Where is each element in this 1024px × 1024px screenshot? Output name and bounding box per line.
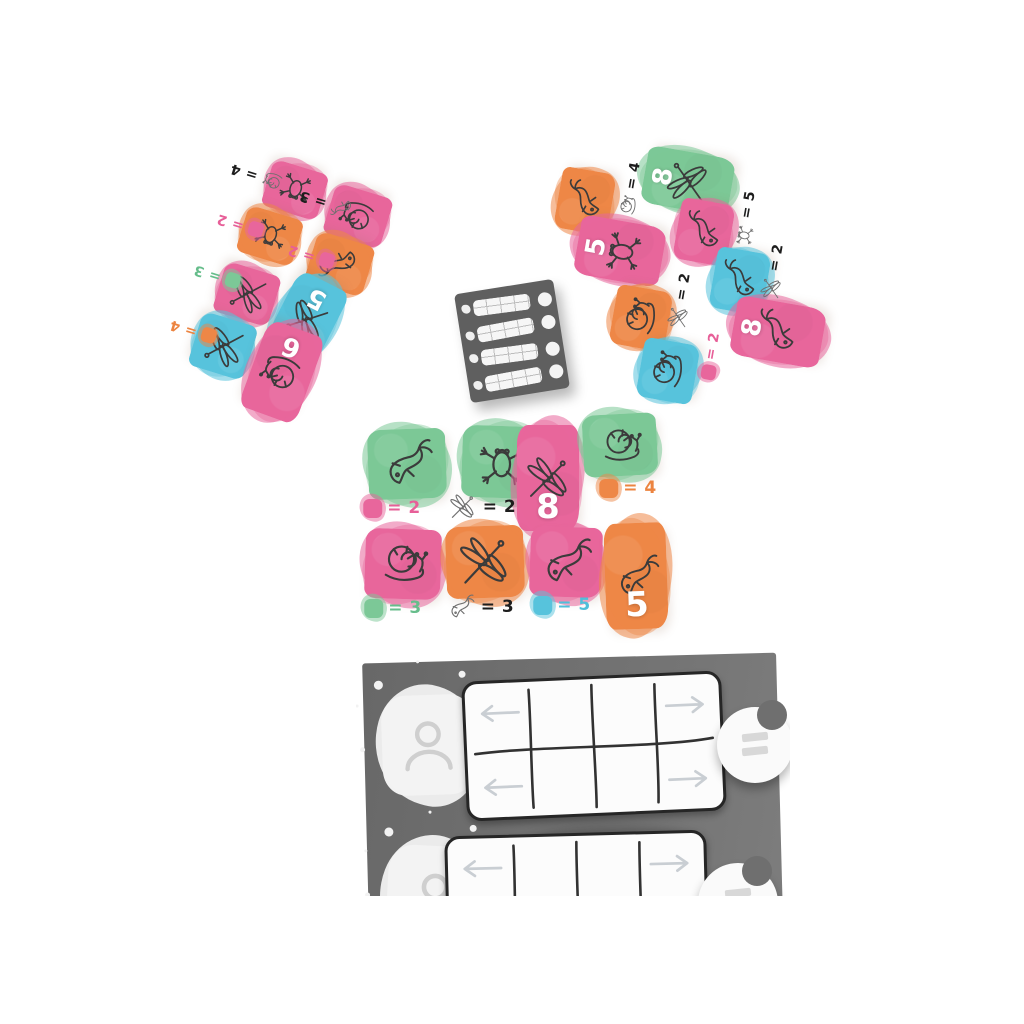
conversion-annotation: = 4 [599, 478, 657, 498]
tracking-grid [461, 670, 727, 821]
conversion-label: = 2 [766, 243, 787, 273]
conversion-label: = 2 [702, 331, 723, 361]
person-icon [396, 710, 461, 780]
card-pink-fish-8: 8 [728, 295, 827, 370]
orange-swatch-icon [199, 326, 218, 345]
teal-swatch-icon [533, 596, 552, 615]
conversion-annotation: = 4 [614, 160, 648, 220]
orange-swatch-icon [599, 479, 618, 498]
mini-flower-slot [465, 331, 475, 341]
score-pad [454, 279, 570, 403]
fish-icon [374, 434, 440, 494]
dragonfly-icon [448, 492, 478, 522]
arrow-right-icon [666, 768, 711, 790]
mini-flower-slot [473, 380, 483, 390]
conversion-annotation: = 3 [364, 598, 422, 618]
conversion-annotation: = 2 [699, 331, 723, 381]
mini-flower-slot [461, 304, 471, 314]
dragonfly-icon [664, 303, 692, 331]
fish-icon [446, 592, 476, 622]
mini-tracking-grid [480, 343, 539, 366]
arrow-left-icon [477, 702, 522, 724]
conversion-label: = 3 [192, 261, 223, 284]
mini-equals-token [545, 341, 561, 357]
green-swatch-icon [223, 271, 242, 290]
dragonfly-icon [452, 531, 518, 592]
card-green-fish [367, 428, 447, 501]
mini-equals-token [540, 314, 556, 330]
snail-icon [588, 418, 651, 472]
conversion-label: = 3 [481, 597, 515, 617]
conversion-annotation: = 5 [533, 595, 591, 615]
card-pink-frog-5: 5 [572, 214, 667, 288]
snail-icon [371, 534, 435, 594]
mini-flower-slot [469, 354, 479, 364]
conversion-label: = 3 [388, 598, 422, 618]
card-teal-snail [635, 337, 701, 406]
pink-swatch-icon [317, 251, 336, 270]
conversion-label: = 2 [483, 497, 517, 517]
tracking-grid [444, 830, 710, 896]
conversion-label: = 4 [623, 478, 657, 498]
conversion-label: = 2 [387, 498, 421, 518]
conversion-label: = 4 [228, 160, 259, 183]
conversion-annotation: = 2 [664, 271, 698, 331]
product-photo: 56= 4= 3= 2= 2= 3= 4 858= 4= 5= 2= 2= 2 … [0, 0, 1024, 1024]
snail-icon [641, 343, 695, 399]
mini-tracking-grid [472, 293, 531, 316]
arrow-left-icon [460, 858, 505, 879]
arrow-left-icon [480, 776, 525, 798]
equals-token [717, 707, 790, 783]
card-green-snail [581, 412, 658, 478]
card-orange-fish-5: 5 [603, 522, 669, 630]
conversion-label: = 4 [168, 316, 199, 339]
conversion-annotation: = 2 [363, 498, 421, 518]
equals-icon [742, 746, 769, 757]
mini-equals-token [537, 292, 553, 308]
conversion-annotation: = 2 [448, 492, 517, 522]
conversion-label: = 2 [215, 210, 246, 233]
green-swatch-icon [364, 599, 383, 618]
frog-icon [729, 221, 757, 249]
conversion-label: = 5 [557, 595, 591, 615]
player-board-area [356, 646, 790, 896]
conversion-label: = 3 [297, 187, 328, 210]
fish-icon [535, 532, 596, 591]
card-pink-fish [529, 526, 603, 598]
arrow-right-icon [663, 694, 708, 716]
equals-icon [725, 888, 752, 896]
card-pink-snail [364, 528, 442, 601]
snail-icon [614, 192, 642, 220]
pink-swatch-icon [246, 220, 265, 239]
conversion-label: = 5 [738, 190, 759, 220]
pink-swatch-icon [363, 499, 382, 518]
equals-icon [742, 732, 769, 743]
conversion-label: = 2 [673, 272, 694, 302]
mini-tracking-grid [476, 317, 535, 343]
mini-tracking-grid [484, 366, 543, 392]
mini-equals-token [548, 363, 564, 379]
dragonfly-icon [757, 274, 785, 302]
card-value: 5 [605, 584, 668, 626]
conversion-annotation: = 3 [446, 592, 515, 622]
arrow-right-icon [648, 853, 693, 874]
card-orange-dragonfly [445, 525, 525, 600]
conversion-label: = 4 [623, 161, 644, 191]
card-pink-dragonfly-8: 8 [517, 425, 579, 531]
pink-swatch-icon [699, 363, 716, 380]
